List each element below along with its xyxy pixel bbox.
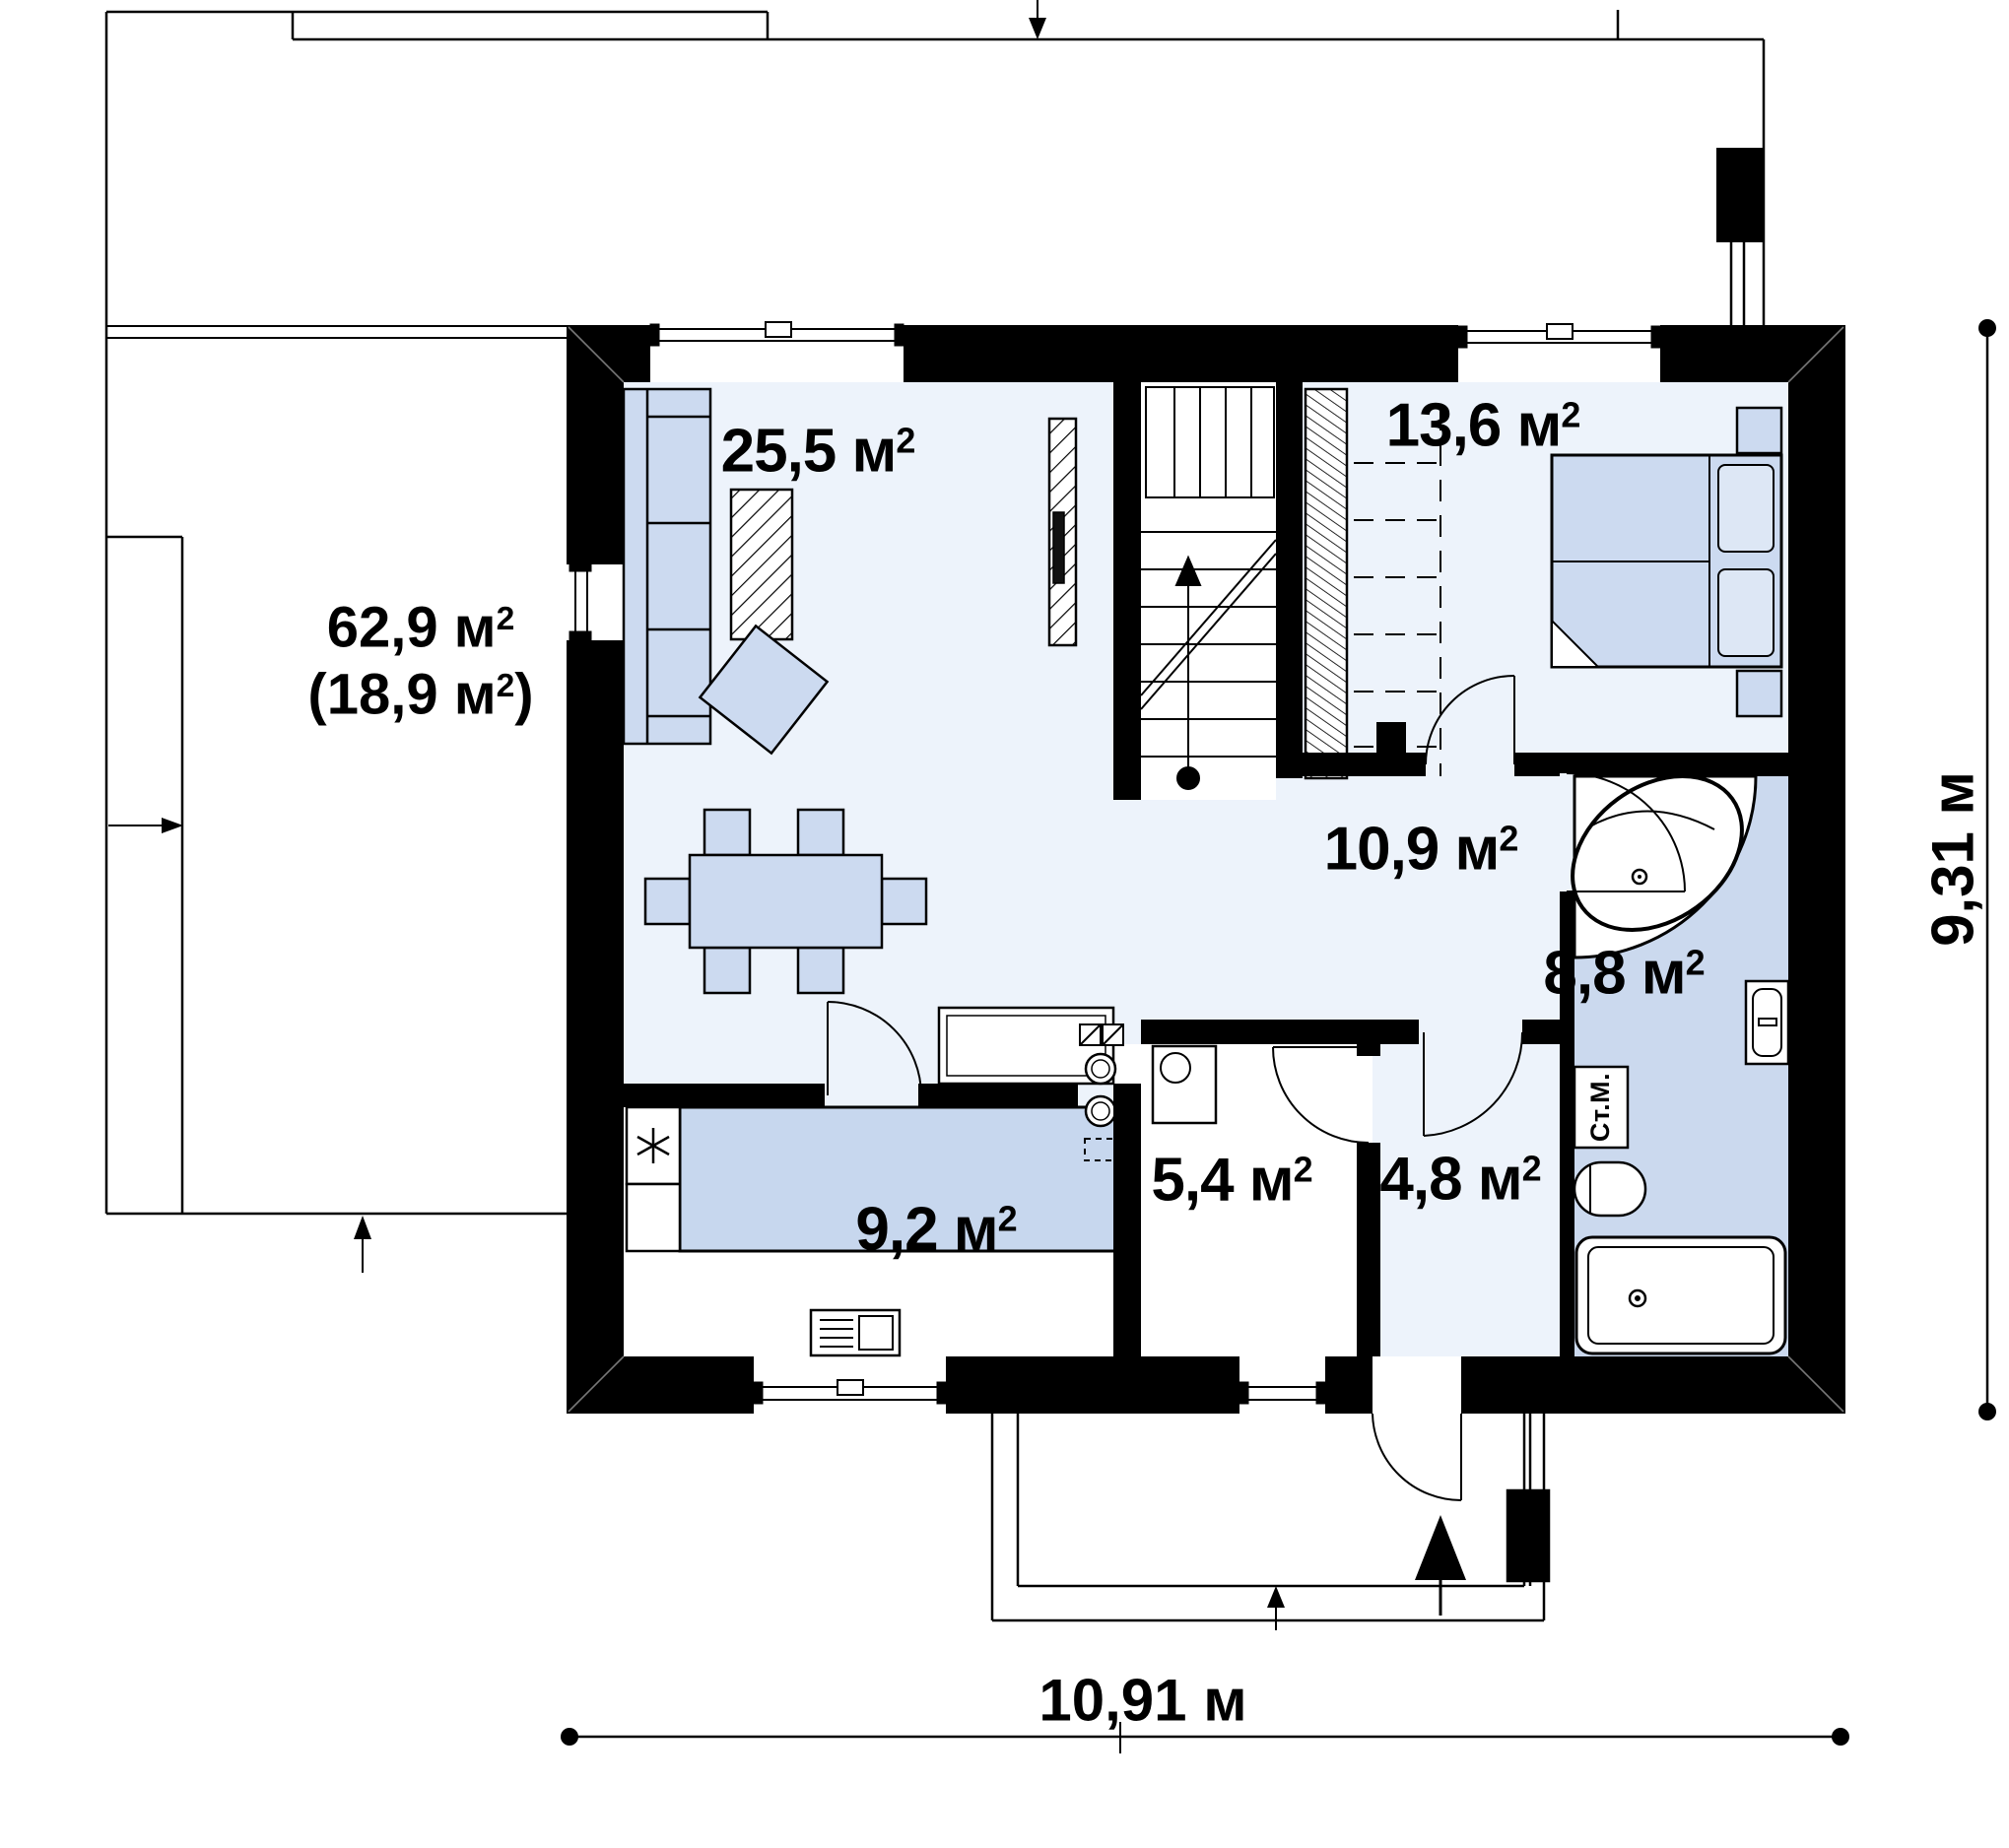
wall-left-lower bbox=[567, 640, 624, 1414]
window-utility-bottom bbox=[1239, 1382, 1325, 1404]
wall-top-middle bbox=[904, 325, 1458, 382]
room-label-bathroom: 8,8 м2 bbox=[1543, 937, 1704, 1009]
pillow-icon bbox=[1718, 465, 1774, 552]
room-label-hall-entry: 4,8 м2 bbox=[1379, 1143, 1540, 1215]
tv-icon bbox=[1053, 512, 1064, 583]
wall-stair-right bbox=[1276, 382, 1303, 778]
roof-overhang-outline bbox=[293, 0, 1764, 325]
door-entrance bbox=[1373, 1414, 1461, 1500]
nightstand-icon bbox=[1737, 408, 1781, 453]
bathtub-icon bbox=[1576, 1237, 1785, 1353]
terrace-entry-arrow-icon bbox=[162, 818, 183, 833]
terrace-area-label: 62,9 м2 (18,9 м2) bbox=[307, 595, 533, 730]
window-living-top bbox=[650, 322, 904, 346]
dining-chair-icon bbox=[798, 810, 843, 855]
dining-table-icon bbox=[690, 855, 882, 948]
floor-plan-page: 25,5 м2 13,6 м2 10,9 м2 8,8 м2 5,4 м2 4,… bbox=[0, 0, 2009, 1848]
room-label-bedroom: 13,6 м2 bbox=[1386, 389, 1580, 461]
fridge-icon bbox=[627, 1107, 680, 1184]
bed-icon bbox=[1552, 455, 1781, 667]
floor-plan-drawing bbox=[0, 0, 2009, 1848]
wall-utility-hall bbox=[1357, 1143, 1380, 1356]
wall-door-jamb-54 bbox=[1357, 1044, 1380, 1056]
wall-right bbox=[1788, 325, 1845, 1414]
wall-bottom-right bbox=[1461, 1356, 1845, 1414]
wall-bathroom-left-upper bbox=[1560, 753, 1574, 773]
wall-hallway-south-left bbox=[1141, 1020, 1419, 1044]
dimension-width-label: 10,91 м bbox=[1038, 1667, 1246, 1737]
washbasin-icon bbox=[1746, 981, 1788, 1064]
window-bedroom-top bbox=[1458, 324, 1660, 348]
room-label-kitchen: 9,2 м2 bbox=[855, 1193, 1016, 1265]
chimney bbox=[1716, 148, 1764, 242]
wall-kitchen-utility bbox=[1113, 1084, 1141, 1356]
room-label-hallway: 10,9 м2 bbox=[1324, 813, 1518, 885]
entrance-arrow-icon bbox=[1415, 1515, 1466, 1616]
porch-arrow-icon bbox=[1267, 1586, 1285, 1608]
dining-chair-icon bbox=[704, 948, 750, 993]
wall-left-upper bbox=[567, 325, 624, 564]
cabinet-hatched-icon bbox=[731, 490, 792, 639]
window-kitchen-bottom bbox=[754, 1380, 946, 1404]
porch-column bbox=[1507, 1490, 1549, 1581]
room-label-utility: 5,4 м2 bbox=[1151, 1144, 1311, 1216]
utility-sink-icon bbox=[1153, 1046, 1216, 1123]
oven-icon bbox=[811, 1310, 900, 1355]
stair-start-dot bbox=[1177, 767, 1199, 789]
wall-bedroom-bathroom bbox=[1574, 753, 1788, 776]
wall-bottom-middle bbox=[946, 1356, 1239, 1414]
terrace-bottom-arrow-icon bbox=[354, 1216, 371, 1239]
wall-kitchen-north-right bbox=[918, 1084, 1078, 1107]
roof-arrow-icon bbox=[1029, 18, 1046, 39]
dining-chair-icon bbox=[882, 879, 926, 924]
wall-bottom-small bbox=[1325, 1356, 1373, 1414]
room-label-living: 25,5 м2 bbox=[721, 415, 915, 487]
dimension-height-label: 9,31 м bbox=[1919, 771, 1989, 947]
wall-kitchen-north-left bbox=[624, 1084, 825, 1107]
dining-chair-icon bbox=[704, 810, 750, 855]
sofa-icon bbox=[624, 389, 710, 744]
nightstand-icon bbox=[1737, 671, 1781, 716]
wardrobe-hatched-icon bbox=[1306, 389, 1347, 778]
wall-hallway-south-right bbox=[1522, 1020, 1560, 1044]
chimney-flue-lines bbox=[1731, 242, 1744, 325]
tv-unit-hatched bbox=[1049, 419, 1076, 645]
wall-stair-left bbox=[1113, 382, 1141, 800]
kitchen-cabinet bbox=[627, 1184, 680, 1251]
dining-chair-icon bbox=[645, 879, 690, 924]
wall-hall-bedroom bbox=[1276, 753, 1426, 776]
water-heater-icon bbox=[1574, 1162, 1645, 1216]
wall-stub bbox=[1376, 722, 1406, 753]
window-living-left bbox=[569, 562, 591, 640]
wall-bedroom-door-jamb bbox=[1514, 753, 1560, 776]
dining-chair-icon bbox=[798, 948, 843, 993]
washing-machine-label: Ст.М. bbox=[1585, 1073, 1617, 1142]
pillow-icon bbox=[1718, 569, 1774, 656]
porch bbox=[992, 1414, 1549, 1630]
